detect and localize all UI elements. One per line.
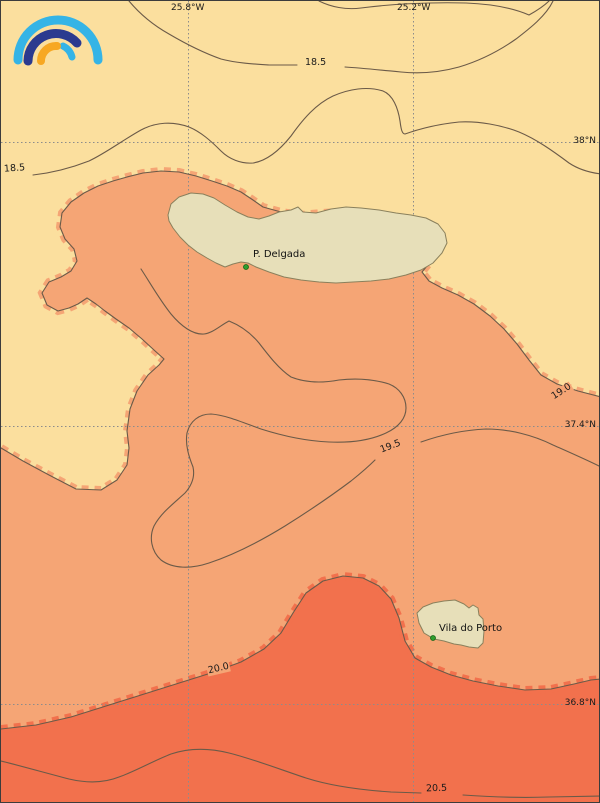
p-delgada-label: P. Delgada [253,250,305,260]
lon-label-25-8w: 25.8°W [171,4,204,13]
contour-label-18-5-left: 18.5 [3,163,27,174]
p-delgada-marker [244,265,249,270]
lat-label-38n: 38°N [573,137,596,146]
vila-do-porto-marker [431,636,436,641]
lon-label-25-2w: 25.2°W [397,4,430,13]
contour-label-20-5: 20.5 [425,784,448,794]
map-canvas: 25.8°W 25.2°W 38°N 37.4°N 36.8°N 18.5 18… [0,0,600,803]
temperature-map [1,1,600,803]
lat-label-36-8n: 36.8°N [565,699,596,708]
lat-label-37-4n: 37.4°N [565,421,596,430]
vila-do-porto-label: Vila do Porto [439,624,502,634]
contour-label-18-5-top: 18.5 [304,58,327,68]
